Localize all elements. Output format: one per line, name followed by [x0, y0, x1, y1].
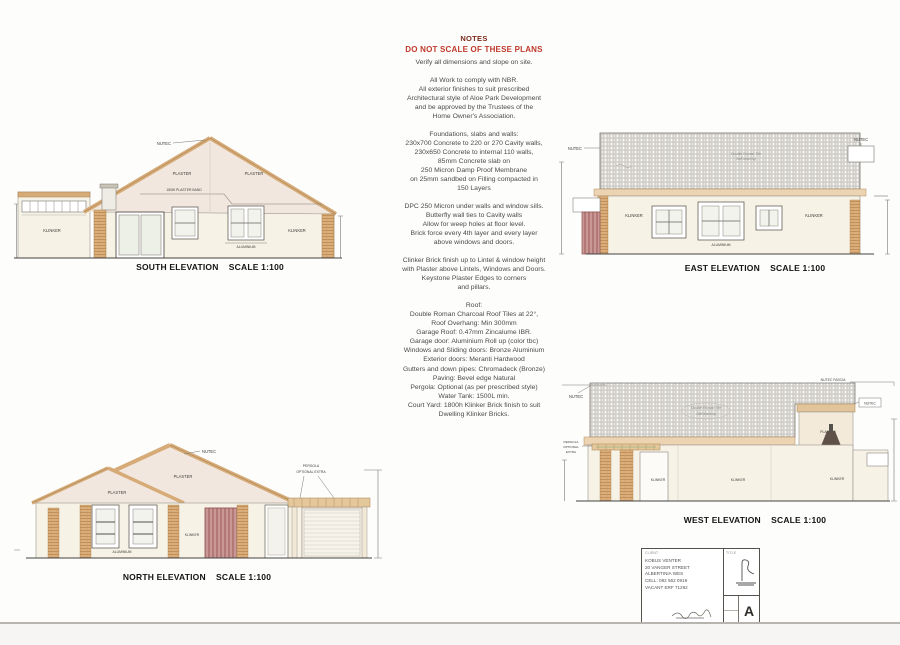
- klinker-pillar: [48, 508, 59, 558]
- notes-paragraph-foundations: Foundations, slabs and walls: 230x700 Co…: [368, 130, 580, 193]
- pergola-label: PERGOLA: [303, 464, 320, 468]
- window: [172, 207, 198, 239]
- window: [92, 505, 119, 548]
- klinker-label: KLINKER: [185, 533, 200, 537]
- roof-notch-box: [848, 146, 874, 162]
- klinker-label: KLINKER: [830, 477, 845, 481]
- nutec-label: NUTEC: [202, 449, 216, 454]
- notes-intro: Verify all dimensions and slope on site.: [368, 58, 580, 67]
- klinker-pillar: [322, 214, 334, 258]
- title-block-mini-rows: [724, 596, 739, 625]
- pergola: [592, 444, 668, 501]
- aluminium-label: ALUMINIUM: [711, 243, 730, 247]
- klinker-label: KLINKER: [288, 228, 306, 233]
- klinker-pillar: [80, 505, 91, 558]
- pergola-post: [362, 507, 367, 558]
- pergola-slats: [288, 498, 370, 507]
- plaster-label: PLASTER: [173, 171, 192, 176]
- parapet-band: [18, 192, 90, 197]
- window-tall: [698, 202, 744, 240]
- klinker-label: KLINKER: [625, 213, 643, 218]
- roof-note: Double Roman Tile: [731, 152, 761, 156]
- timber-double-door: [205, 508, 238, 558]
- eave-band-upper: [797, 404, 855, 412]
- klinker-pillar: [620, 450, 633, 501]
- west-elevation-drawing: Double Roman Tile Self draining PLASTER: [556, 374, 900, 514]
- klinker-label: KLINKER: [43, 228, 61, 233]
- klinker-label: KLINKER: [731, 478, 746, 482]
- north-elevation-caption: NORTH ELEVATION SCALE 1:100: [123, 572, 271, 582]
- east-elevation-caption: EAST ELEVATION SCALE 1:100: [685, 263, 826, 273]
- klinker-label: KLINKER: [651, 478, 666, 482]
- title-block: CLIENT KOBUS VENTER 20 VANGER STREET ALB…: [641, 548, 760, 626]
- title-cell-top: TITLE: [724, 549, 759, 596]
- east-elevation-drawing: Double Roman Tile Self draining: [556, 126, 900, 268]
- plaster-band-label: 150W PLASTER BAND: [166, 188, 202, 192]
- klinker-pillar: [850, 200, 860, 254]
- entrance-door: [265, 505, 288, 558]
- sliding-door: [116, 212, 164, 258]
- plaster-label: PLASTER: [174, 474, 193, 479]
- south-elevation-drawing: NUTEC PLASTER PLASTER 150W PLASTER BAND …: [12, 122, 344, 262]
- nutec-label: NUTEC: [568, 146, 582, 151]
- south-elevation-caption: SOUTH ELEVATION SCALE 1:100: [136, 262, 284, 272]
- notes-panel: NOTES DO NOT SCALE OF THESE PLANS Verify…: [368, 34, 580, 419]
- side-step: [573, 198, 600, 212]
- klinker-label: KLINKER: [805, 213, 823, 218]
- pergola-label: EXTRA: [566, 450, 577, 454]
- timber-screen: [582, 212, 600, 254]
- client-signature: [670, 605, 714, 621]
- klinker-pillar: [168, 505, 179, 558]
- client-details: KOBUS VENTER 20 VANGER STREET ALBERTINIA…: [645, 558, 720, 591]
- garage-wing: [18, 192, 90, 258]
- drawing-sheet: NOTES DO NOT SCALE OF THESE PLANS Verify…: [0, 0, 900, 645]
- chimney: [100, 184, 118, 210]
- garage-door: [304, 510, 360, 556]
- roof-note: Self draining: [696, 412, 716, 416]
- notes-title: NOTES: [368, 34, 580, 44]
- page-below-margin: [0, 624, 900, 645]
- notes-paragraph-clinker: Clinker Brick finish up to Lintel & wind…: [368, 256, 580, 292]
- eave-band: [594, 189, 866, 196]
- title-block-client-cell: CLIENT KOBUS VENTER 20 VANGER STREET ALB…: [642, 549, 724, 625]
- plaster-label: PLASTER: [108, 490, 127, 495]
- klinker-pillar: [600, 450, 611, 501]
- nutec-label: NUTEC: [569, 394, 583, 399]
- window: [129, 505, 157, 548]
- notes-paragraph-compliance: All Work to comply with NBR. All exterio…: [368, 76, 580, 121]
- do-not-scale-warning: DO NOT SCALE OF THESE PLANS: [368, 45, 580, 56]
- plaster-label: PLASTER: [245, 171, 264, 176]
- tiled-roof: Double Roman Tile Self draining: [600, 133, 874, 189]
- roof-note: Self draining: [736, 157, 756, 161]
- title-block-title-cell: TITLE A: [724, 549, 759, 625]
- pergola-label: OPTIONAL: [563, 445, 579, 449]
- window: [756, 206, 782, 230]
- aluminium-label: ALUMINIUM: [236, 245, 255, 249]
- notes-paragraph-roof: Roof: Double Roman Charcoal Roof Tiles a…: [368, 301, 580, 418]
- pergola-label: PERGOLA: [564, 440, 580, 444]
- klinker-pillar: [237, 505, 248, 558]
- nutec-label: NUTEC: [864, 402, 876, 406]
- nutec-fascia-label: NUTEC FASCIA: [821, 378, 846, 382]
- notes-paragraph-dpc: DPC 250 Micron under walls and window si…: [368, 202, 580, 247]
- west-elevation-caption: WEST ELEVATION SCALE 1:100: [684, 515, 826, 525]
- pergola-label: OPTIONAL EXTRA: [296, 470, 326, 474]
- door-behind-pergola: [640, 452, 668, 501]
- aluminium-label: ALUMINIUM: [112, 550, 131, 554]
- pergola-post: [292, 507, 297, 558]
- side-step: [867, 453, 888, 466]
- title-cell-bottom: A: [724, 596, 759, 625]
- window: [652, 206, 686, 238]
- nutec-label: NUTEC: [157, 141, 171, 146]
- window: [225, 206, 267, 243]
- nutec-label: NUTEC: [854, 137, 868, 142]
- roof-note: Double Roman Tile: [691, 406, 721, 410]
- title-header: TITLE: [726, 551, 757, 555]
- north-elevation-drawing: NUTEC PLASTER PLASTER KLINKER ALUMINIUM …: [12, 428, 394, 574]
- klinker-pillar: [94, 210, 106, 258]
- sheet-revision-letter: A: [739, 596, 759, 625]
- client-header: CLIENT: [645, 551, 720, 555]
- architect-signature: [732, 557, 758, 587]
